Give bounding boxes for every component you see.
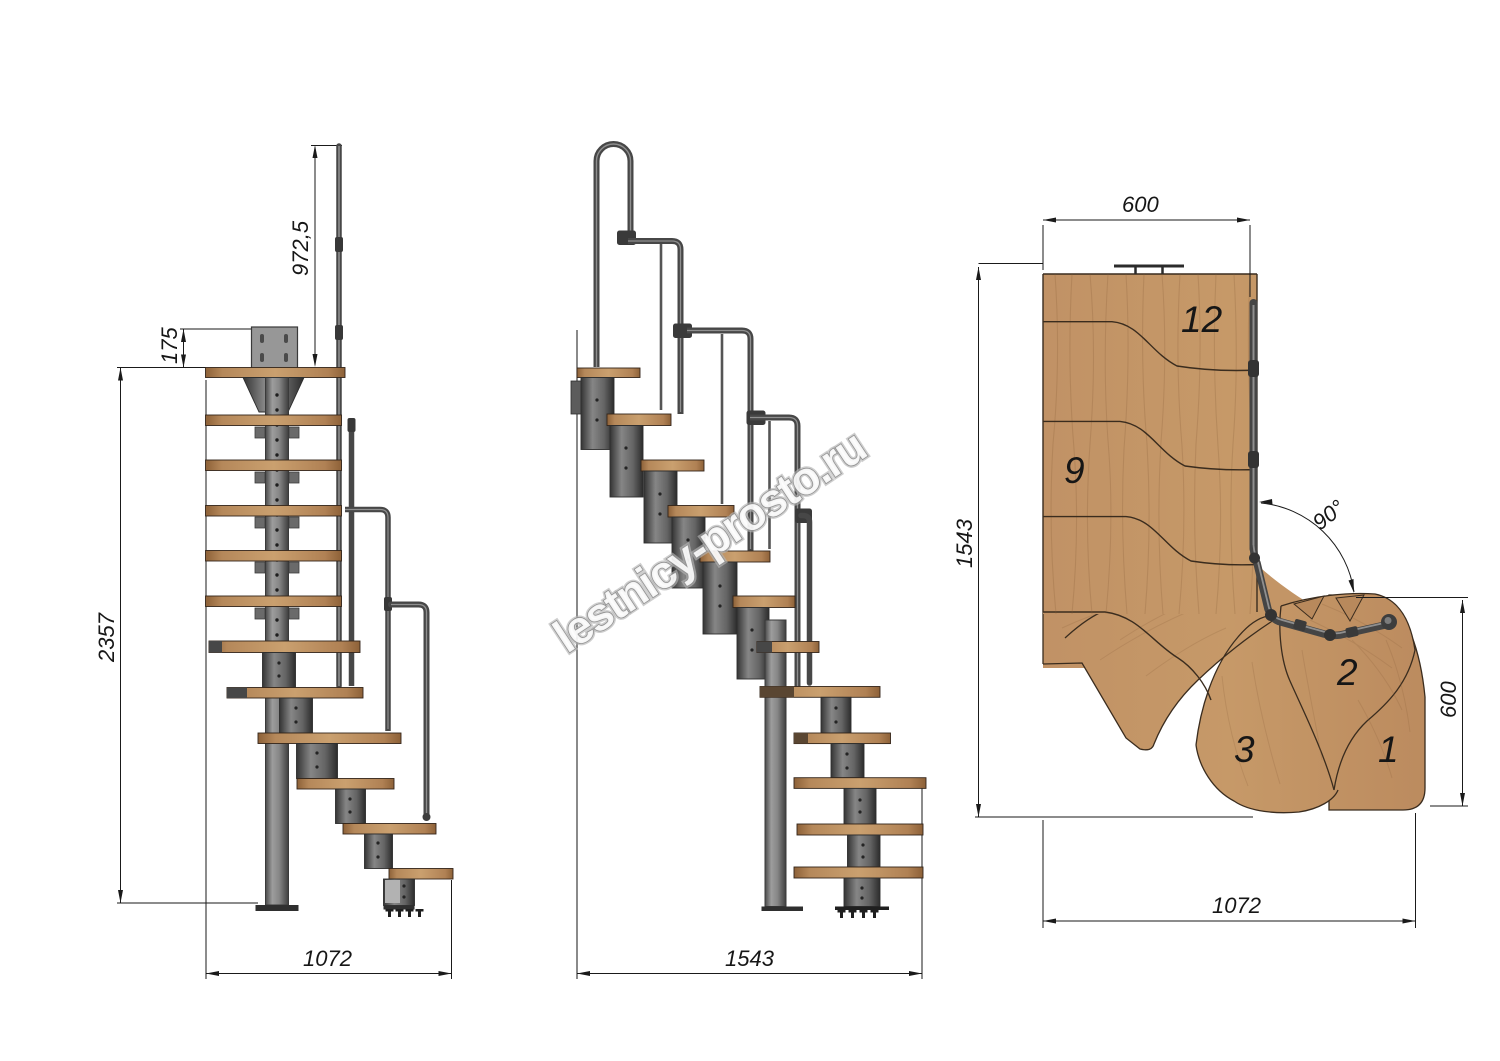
svg-text:600: 600 (1436, 681, 1461, 718)
svg-text:1072: 1072 (1212, 893, 1261, 918)
svg-text:600: 600 (1122, 192, 1159, 217)
svg-text:972,5: 972,5 (288, 220, 313, 276)
svg-text:3: 3 (1234, 729, 1255, 770)
svg-text:1543: 1543 (725, 946, 775, 971)
svg-text:2: 2 (1336, 652, 1358, 693)
svg-text:175: 175 (157, 327, 182, 364)
svg-text:9: 9 (1064, 450, 1085, 491)
svg-text:1072: 1072 (303, 946, 352, 971)
svg-text:90°: 90° (1308, 495, 1350, 535)
svg-text:1: 1 (1378, 729, 1399, 770)
svg-text:1543: 1543 (952, 518, 977, 568)
svg-text:2357: 2357 (94, 612, 119, 663)
svg-text:12: 12 (1181, 299, 1223, 340)
